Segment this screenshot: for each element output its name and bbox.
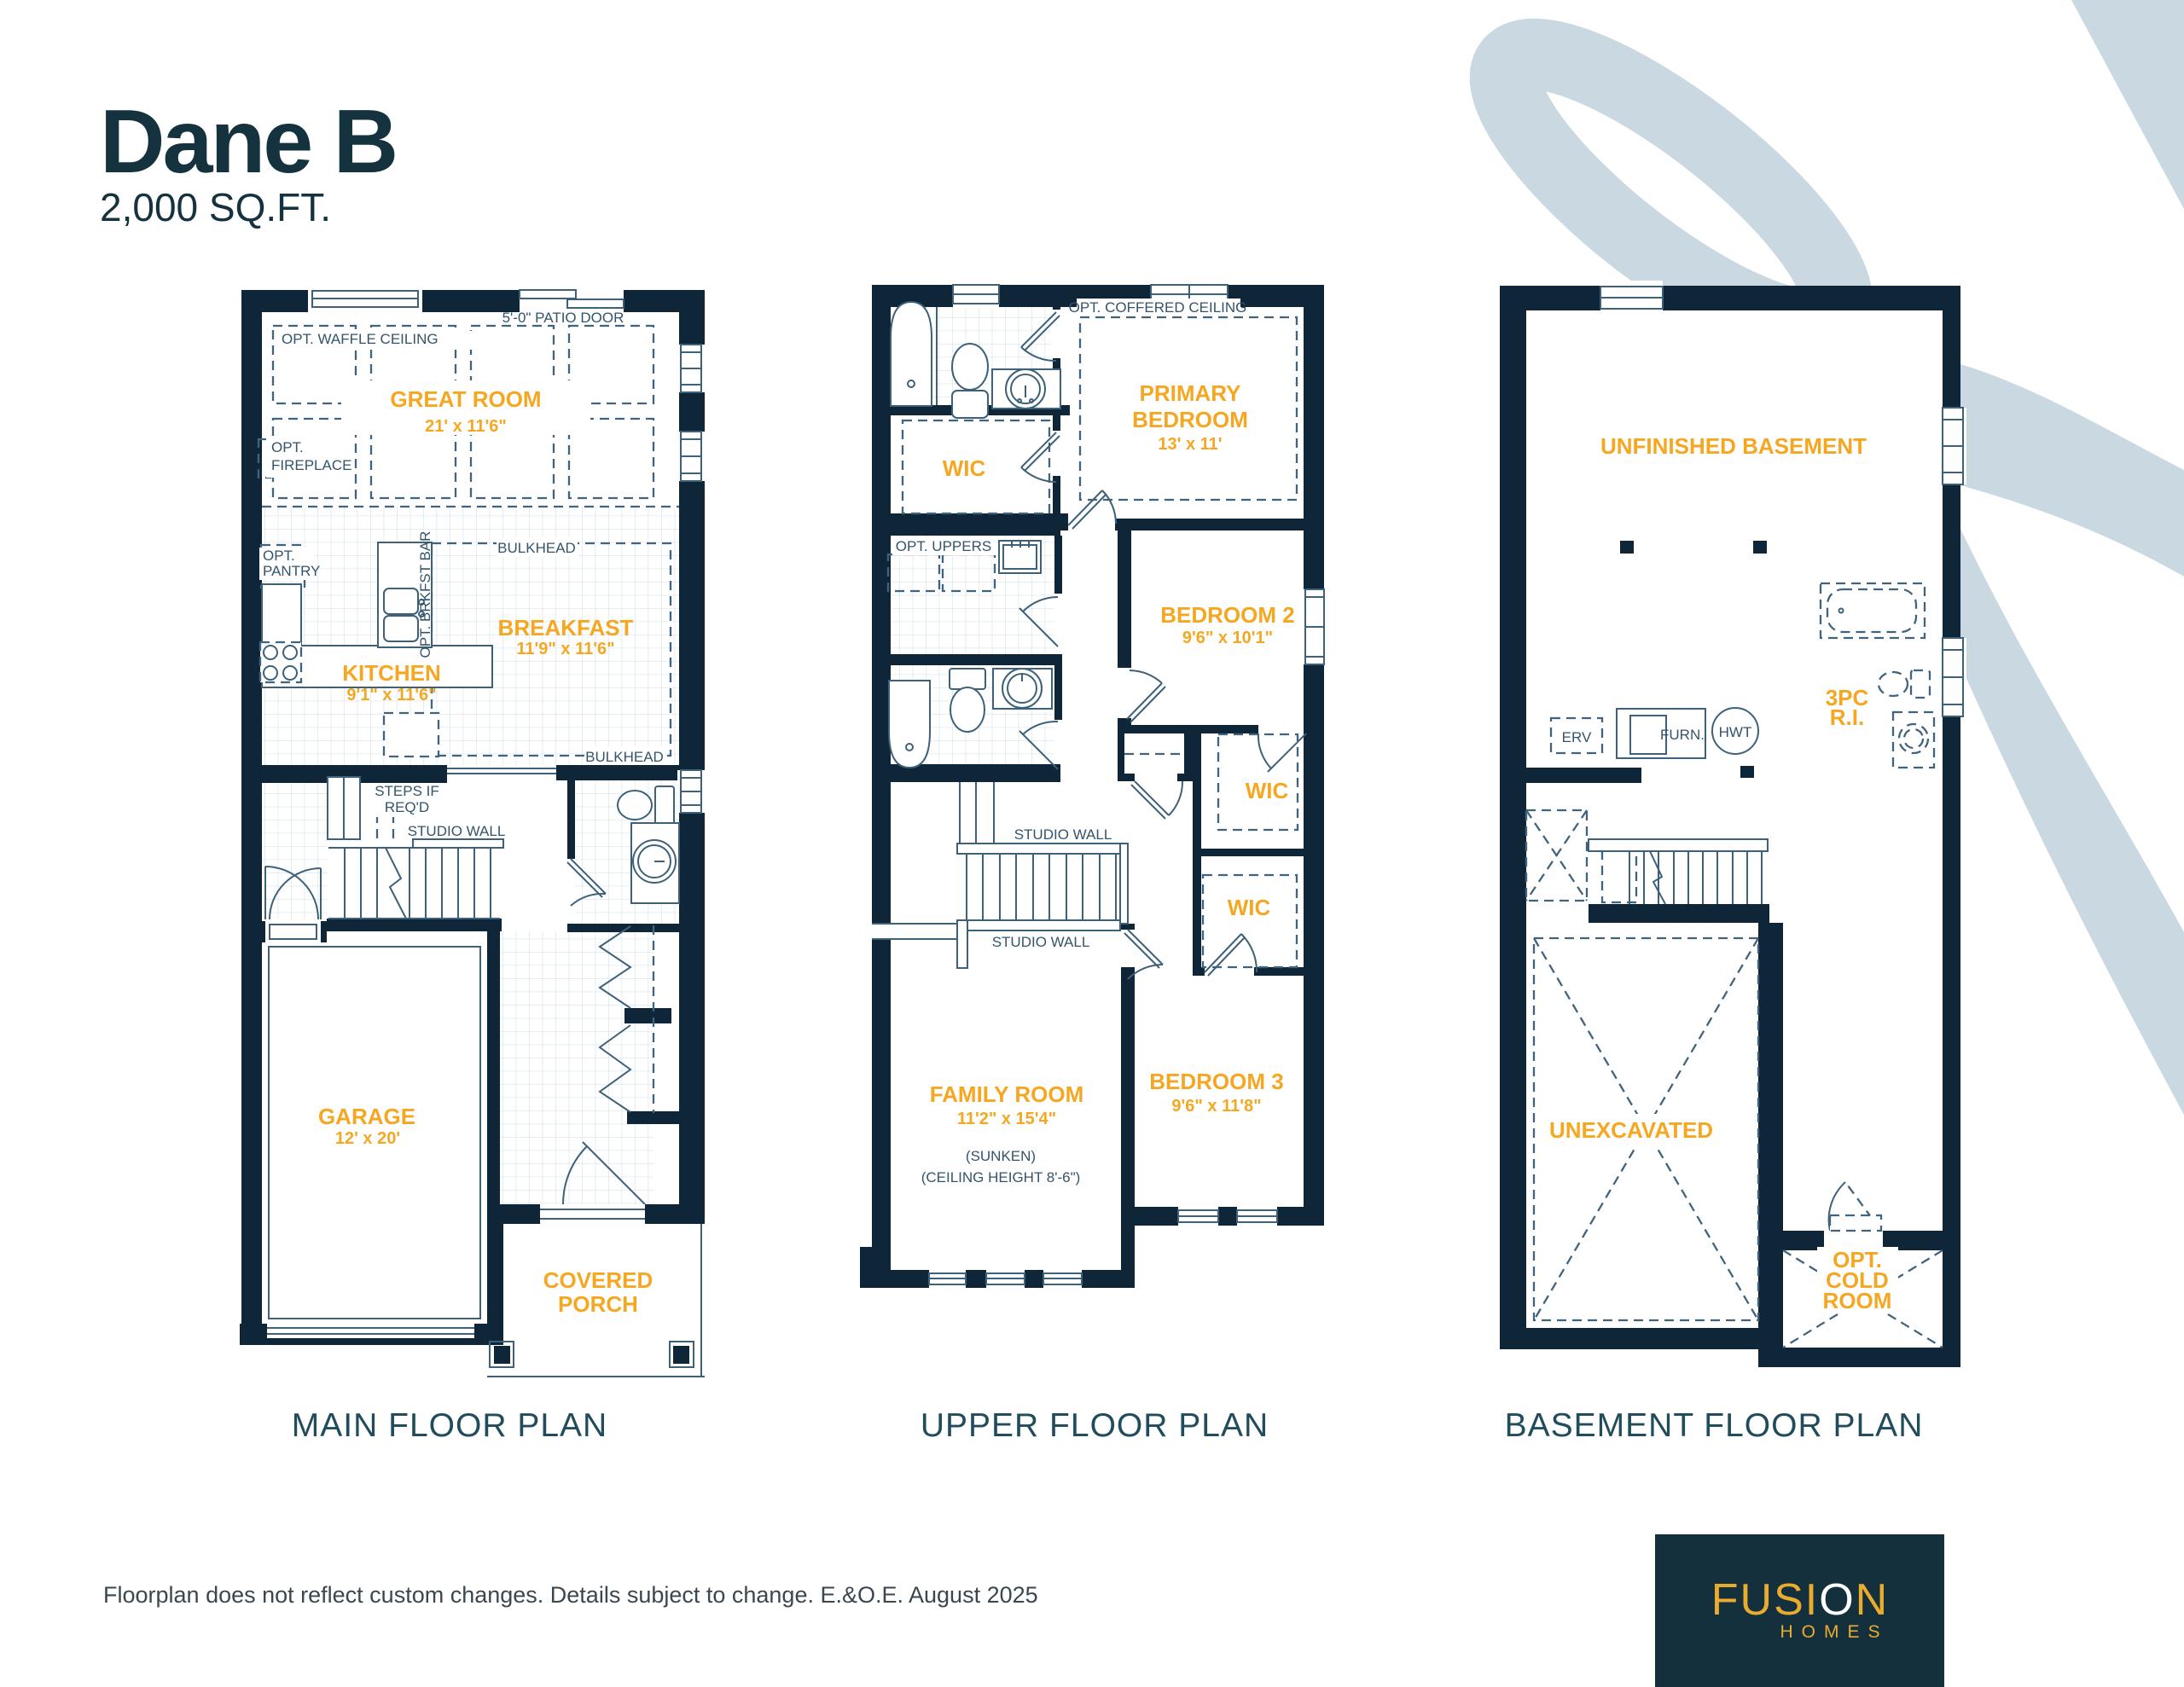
svg-text:21' x 11'6": 21' x 11'6" [425, 417, 507, 436]
svg-text:OPT.: OPT. [263, 548, 295, 564]
svg-text:UNFINISHED BASEMENT: UNFINISHED BASEMENT [1600, 433, 1867, 459]
svg-text:MAIN FLOOR PLAN: MAIN FLOOR PLAN [292, 1407, 607, 1444]
svg-text:R.I.: R.I. [1830, 704, 1864, 730]
svg-text:HWT: HWT [1719, 724, 1752, 740]
svg-text:Floorplan does not reflect cus: Floorplan does not reflect custom change… [103, 1582, 1038, 1608]
svg-text:5'-0" PATIO DOOR: 5'-0" PATIO DOOR [502, 310, 624, 326]
svg-text:GARAGE: GARAGE [318, 1104, 415, 1129]
svg-text:HOMES: HOMES [1780, 1622, 1888, 1642]
svg-text:11'2" x 15'4": 11'2" x 15'4" [957, 1110, 1056, 1128]
svg-text:9'6" x 11'8": 9'6" x 11'8" [1171, 1097, 1261, 1116]
svg-text:UNEXCAVATED: UNEXCAVATED [1549, 1117, 1713, 1143]
svg-text:9'1" x 11'6": 9'1" x 11'6" [346, 686, 436, 704]
svg-text:OPT. WAFFLE CEILING: OPT. WAFFLE CEILING [282, 331, 439, 347]
svg-text:WIC: WIC [1246, 778, 1289, 803]
svg-text:OPT. BRKFST BAR: OPT. BRKFST BAR [417, 531, 433, 658]
svg-text:FIREPLACE: FIREPLACE [271, 457, 351, 473]
svg-text:STUDIO WALL: STUDIO WALL [1014, 826, 1112, 843]
svg-text:WIC: WIC [943, 455, 986, 481]
svg-text:BEDROOM 3: BEDROOM 3 [1149, 1069, 1283, 1094]
svg-text:STUDIO WALL: STUDIO WALL [992, 934, 1090, 950]
svg-text:STEPS IF: STEPS IF [375, 783, 439, 799]
svg-text:OPT. UPPERS: OPT. UPPERS [896, 538, 991, 554]
svg-text:KITCHEN: KITCHEN [342, 660, 441, 686]
svg-text:UPPER FLOOR PLAN: UPPER FLOOR PLAN [921, 1407, 1269, 1444]
svg-text:WIC: WIC [1228, 895, 1271, 920]
svg-text:9'6" x 10'1": 9'6" x 10'1" [1182, 629, 1273, 647]
svg-text:BASEMENT FLOOR PLAN: BASEMENT FLOOR PLAN [1505, 1407, 1924, 1444]
svg-text:BEDROOM: BEDROOM [1132, 407, 1248, 432]
svg-text:OPT. COFFERED CEILING: OPT. COFFERED CEILING [1069, 299, 1247, 316]
svg-text:2,000 SQ.FT.: 2,000 SQ.FT. [100, 185, 331, 229]
svg-text:Dane B: Dane B [100, 91, 396, 192]
svg-text:BREAKFAST: BREAKFAST [498, 615, 634, 641]
svg-text:PORCH: PORCH [558, 1291, 638, 1317]
svg-text:REQ'D: REQ'D [385, 799, 429, 815]
svg-text:FURN.: FURN. [1660, 727, 1705, 743]
svg-text:(SUNKEN): (SUNKEN) [966, 1148, 1036, 1164]
svg-text:BEDROOM 2: BEDROOM 2 [1160, 602, 1294, 628]
svg-text:COVERED: COVERED [543, 1267, 653, 1293]
svg-text:OPT.: OPT. [271, 439, 304, 455]
svg-text:STUDIO WALL: STUDIO WALL [408, 823, 506, 839]
svg-text:PANTRY: PANTRY [263, 563, 320, 579]
svg-text:GREAT ROOM: GREAT ROOM [390, 386, 541, 412]
svg-text:12' x 20': 12' x 20' [335, 1129, 400, 1148]
svg-text:BULKHEAD: BULKHEAD [497, 540, 576, 556]
svg-text:ERV: ERV [1562, 729, 1592, 745]
svg-text:BULKHEAD: BULKHEAD [585, 749, 664, 765]
svg-text:11'9" x 11'6": 11'9" x 11'6" [516, 640, 614, 658]
svg-text:FAMILY ROOM: FAMILY ROOM [930, 1081, 1084, 1107]
svg-text:13' x 11': 13' x 11' [1158, 435, 1222, 454]
svg-text:(CEILING HEIGHT 8'-6"): (CEILING HEIGHT 8'-6") [921, 1169, 1081, 1186]
svg-text:FUSION: FUSION [1711, 1575, 1889, 1625]
svg-text:ROOM: ROOM [1823, 1288, 1892, 1313]
svg-text:PRIMARY: PRIMARY [1140, 380, 1241, 406]
